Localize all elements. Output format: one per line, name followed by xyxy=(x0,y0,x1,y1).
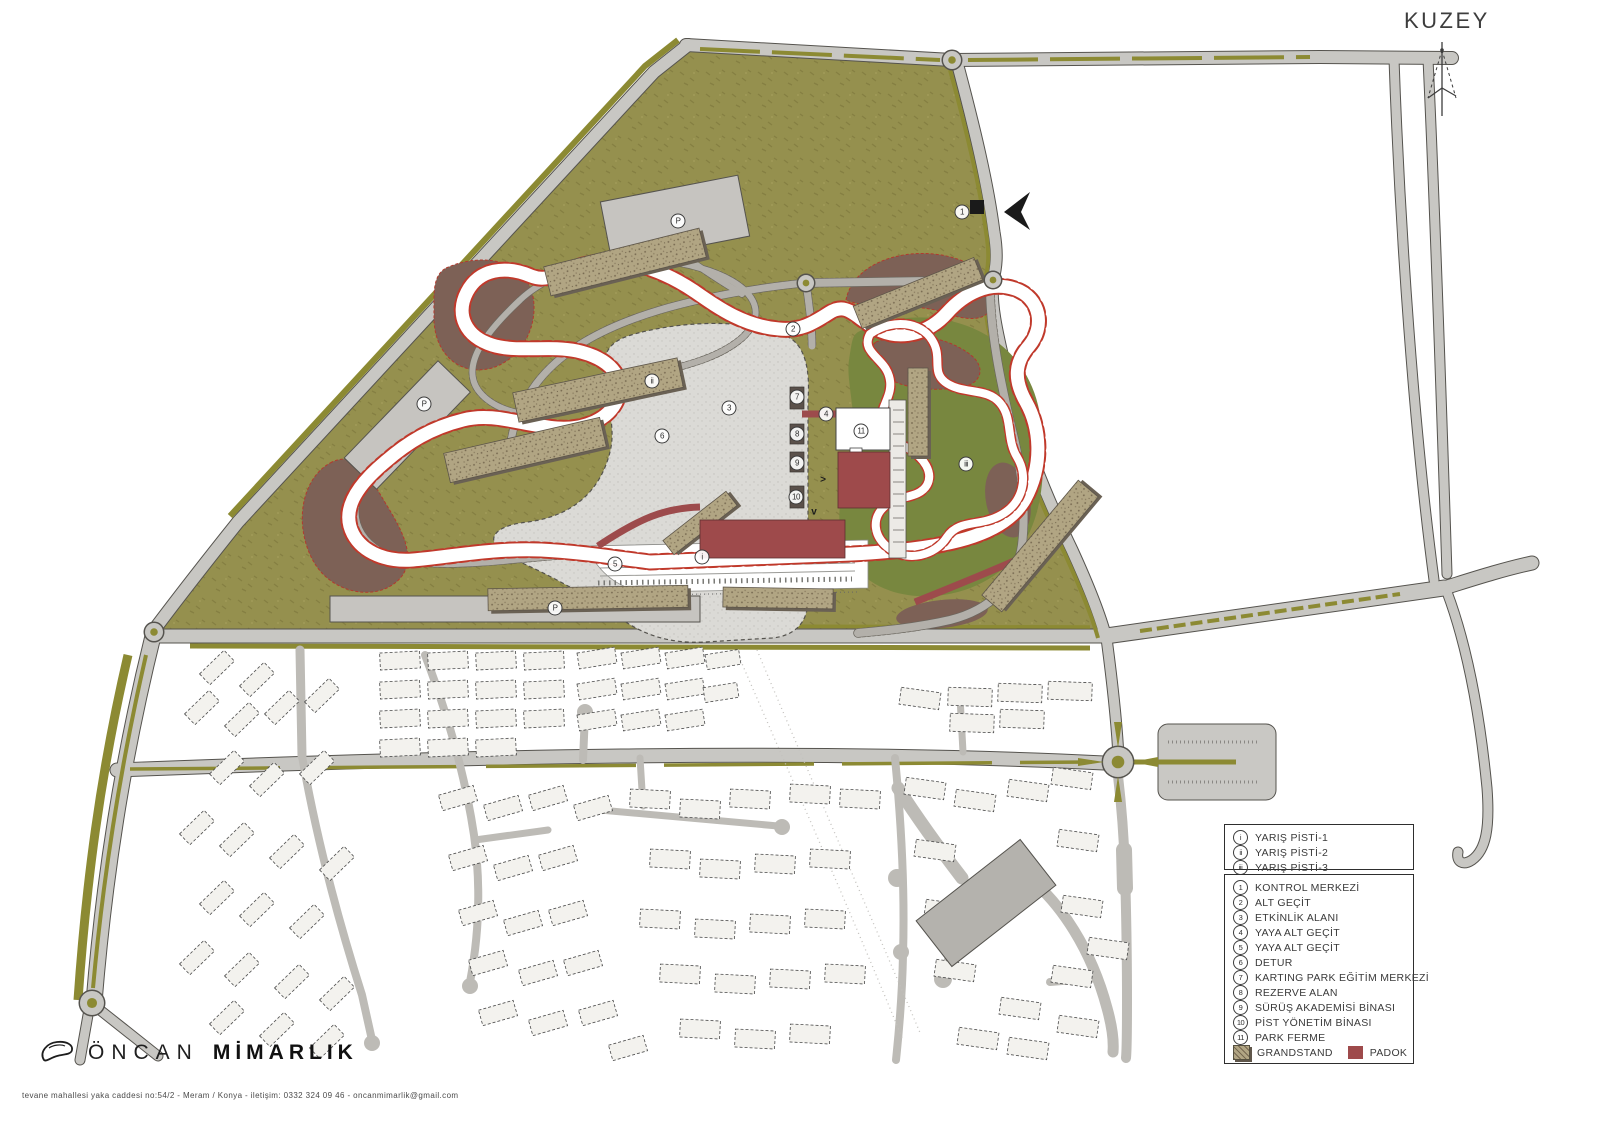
marker-detur: 6 xyxy=(655,429,670,444)
legend-num: 5 xyxy=(1233,940,1248,955)
building-footprint xyxy=(265,690,300,724)
legend-num: 11 xyxy=(1233,1030,1248,1045)
legend-num: 9 xyxy=(1233,1000,1248,1015)
legend-label: DETUR xyxy=(1255,957,1293,969)
building-footprint xyxy=(914,839,956,861)
building-footprint xyxy=(665,678,705,700)
building-footprint xyxy=(380,651,421,670)
building-footprint xyxy=(621,647,661,669)
cul-de-sac xyxy=(888,869,906,887)
roundabout-island xyxy=(1112,756,1125,769)
legend-label: YAYA ALT GEÇİT xyxy=(1255,942,1340,954)
legend-row: iiYARIŞ PİSTİ-2 xyxy=(1233,845,1405,860)
roundabout-island xyxy=(87,998,97,1008)
pit-lane xyxy=(889,400,906,558)
building-footprint xyxy=(700,859,741,879)
site-plan-canvas: KUZEY 1 2 3 4 5 6 7 8 9 10 11 i ii iii P… xyxy=(0,0,1600,1131)
marker-rezerve-alan: 8 xyxy=(790,427,805,442)
building-footprint xyxy=(630,789,671,809)
building-footprint xyxy=(680,1019,721,1039)
building-footprint xyxy=(735,1029,776,1049)
parking-label-south: P xyxy=(548,601,563,616)
marker-yaya-alt-gecit-4: 4 xyxy=(819,407,834,422)
grandstand-swatch xyxy=(1233,1045,1250,1060)
legend-num: iii xyxy=(1233,860,1248,875)
firm-logo: ÖNCAN MİMARLIK xyxy=(36,1038,358,1068)
legend-row: iYARIŞ PİSTİ-1 xyxy=(1233,830,1405,845)
legend-num: i xyxy=(1233,830,1248,845)
flow-arrow-right: > xyxy=(820,475,826,486)
building-footprint xyxy=(476,709,517,728)
road xyxy=(1428,59,1447,574)
building-footprint xyxy=(608,1035,647,1060)
roundabout-island xyxy=(948,56,956,64)
building-footprint xyxy=(275,964,310,998)
legend-row: 10PİST YÖNETİM BİNASI xyxy=(1233,1015,1405,1030)
legend-row: 9SÜRÜŞ AKADEMİSİ BİNASI xyxy=(1233,1000,1405,1015)
building-footprint xyxy=(225,702,260,736)
legend-swatch-row: GRANDSTAND PADOK xyxy=(1233,1045,1405,1060)
padok-building-long xyxy=(700,520,845,558)
building-footprint xyxy=(225,952,260,986)
building-footprint xyxy=(428,680,469,699)
marker-park-ferme: 11 xyxy=(854,424,869,439)
building-footprint xyxy=(1000,709,1045,729)
legend-label: PADOK xyxy=(1370,1047,1407,1059)
building-footprint xyxy=(428,738,469,757)
building-footprint xyxy=(380,680,421,699)
building-footprint xyxy=(493,855,532,880)
building-footprint xyxy=(705,649,741,669)
building-footprint xyxy=(528,785,567,810)
building-footprint xyxy=(524,651,565,670)
building-footprint xyxy=(1057,1015,1099,1037)
marker-surus-akademisi: 9 xyxy=(790,456,805,471)
building-footprint xyxy=(755,854,796,874)
marker-yaya-alt-gecit-5: 5 xyxy=(608,557,623,572)
building-footprint xyxy=(185,690,220,724)
building-footprint xyxy=(805,909,846,929)
legend-num: 4 xyxy=(1233,925,1248,940)
legend-label: ETKİNLİK ALANI xyxy=(1255,912,1339,924)
legend-label: YAYA ALT GEÇİT xyxy=(1255,927,1340,939)
parking-label-west: P xyxy=(417,397,432,412)
building-footprint xyxy=(948,687,993,707)
building-footprint xyxy=(1007,779,1049,801)
street xyxy=(300,650,302,756)
building-footprint xyxy=(577,647,617,669)
building-footprint xyxy=(660,964,701,984)
building-footprint xyxy=(270,834,305,868)
marker-etkinlik-alani: 3 xyxy=(722,401,737,416)
legend-label: PARK FERME xyxy=(1255,1032,1325,1044)
legend-label: SÜRÜŞ AKADEMİSİ BİNASI xyxy=(1255,1002,1395,1014)
road xyxy=(1447,592,1488,863)
brand-name-light: ÖNCAN xyxy=(88,1041,199,1065)
building-footprint xyxy=(621,678,661,700)
legend-row: 1KONTROL MERKEZİ xyxy=(1233,880,1405,895)
building-footprint xyxy=(240,892,275,926)
building-footprint xyxy=(640,909,681,929)
legend-label: KONTROL MERKEZİ xyxy=(1255,882,1359,894)
padok-swatch xyxy=(1348,1046,1363,1059)
building-footprint xyxy=(528,1010,567,1035)
building-footprint xyxy=(518,960,557,985)
legend-row: 8REZERVE ALAN xyxy=(1233,985,1405,1000)
green-median xyxy=(190,646,1090,648)
control-center-building xyxy=(970,200,984,214)
legend-num: ii xyxy=(1233,845,1248,860)
marker-pist-yonetim: 10 xyxy=(789,490,804,505)
building-footprint xyxy=(380,738,421,757)
marker-pist-1: i xyxy=(695,550,710,565)
building-footprint xyxy=(577,678,617,700)
building-footprint xyxy=(524,709,565,728)
building-footprint xyxy=(665,709,705,731)
building-footprint xyxy=(957,1027,999,1049)
legend-row: 4YAYA ALT GEÇİT xyxy=(1233,925,1405,940)
building-footprint xyxy=(1051,767,1093,789)
building-footprint xyxy=(210,1000,245,1034)
brand-name-bold: MİMARLIK xyxy=(213,1041,358,1065)
building-footprint xyxy=(180,940,215,974)
marker-pist-2: ii xyxy=(645,374,660,389)
legend-num: 3 xyxy=(1233,910,1248,925)
building-footprint xyxy=(290,904,325,938)
legend-row: 7KARTING PARK EĞİTİM MERKEZİ xyxy=(1233,970,1405,985)
building-footprint xyxy=(483,795,522,820)
grandstand xyxy=(488,585,688,610)
building-footprint xyxy=(563,950,602,975)
grandstand xyxy=(908,368,928,456)
building-footprint xyxy=(428,651,469,670)
building-footprint xyxy=(680,799,721,819)
street xyxy=(898,788,962,878)
north-label: KUZEY xyxy=(1404,8,1490,34)
building-footprint xyxy=(476,651,517,670)
building-footprint xyxy=(180,810,215,844)
firm-address: tevane mahallesi yaka caddesi no:54/2 - … xyxy=(22,1091,458,1100)
building-footprint xyxy=(578,1000,617,1025)
building-footprint xyxy=(790,784,831,804)
building-footprint xyxy=(750,914,791,934)
building-footprint xyxy=(999,997,1041,1019)
building-footprint xyxy=(524,680,565,699)
marker-kontrol-merkezi: 1 xyxy=(955,205,970,220)
building-footprint xyxy=(200,880,235,914)
legend-row: 2ALT GEÇİT xyxy=(1233,895,1405,910)
parking-label-north: P xyxy=(671,214,686,229)
building-footprint xyxy=(380,709,421,728)
legend-label: YARIŞ PİSTİ-2 xyxy=(1255,847,1328,859)
building-footprint xyxy=(428,709,469,728)
legend-label: GRANDSTAND xyxy=(1257,1047,1333,1059)
building-footprint xyxy=(770,969,811,989)
legend-num: 6 xyxy=(1233,955,1248,970)
legend-tracks-box: iYARIŞ PİSTİ-1 iiYARIŞ PİSTİ-2 iiiYARIŞ … xyxy=(1224,824,1414,870)
building-footprint xyxy=(899,687,941,709)
roundabout-island xyxy=(803,280,810,287)
legend-label: YARIŞ PİSTİ-3 xyxy=(1255,862,1328,874)
legend-num: 1 xyxy=(1233,880,1248,895)
grandstand xyxy=(723,587,833,609)
legend-label: KARTING PARK EĞİTİM MERKEZİ xyxy=(1255,972,1429,984)
building-footprint xyxy=(825,964,866,984)
street xyxy=(1124,850,1125,888)
building-footprint xyxy=(478,1000,517,1025)
legend-num: 2 xyxy=(1233,895,1248,910)
entrance-arrow-icon xyxy=(1004,192,1030,230)
building-footprint xyxy=(621,709,661,731)
building-footprint xyxy=(573,795,612,820)
building-footprint xyxy=(665,647,705,669)
legend-label: REZERVE ALAN xyxy=(1255,987,1338,999)
building-footprint xyxy=(695,919,736,939)
street xyxy=(475,830,548,840)
building-footprint xyxy=(503,910,542,935)
building-footprint xyxy=(305,678,340,712)
legend-num: 10 xyxy=(1233,1015,1248,1030)
street xyxy=(425,655,478,982)
legend-row: 11PARK FERME xyxy=(1233,1030,1405,1045)
marker-karting-park: 7 xyxy=(790,390,805,405)
cul-de-sac xyxy=(774,819,790,835)
legend-row: 6DETUR xyxy=(1233,955,1405,970)
street xyxy=(1118,776,1127,1058)
roundabout-island xyxy=(990,277,997,284)
building-footprint xyxy=(730,789,771,809)
building-footprint xyxy=(448,845,487,870)
building-footprint xyxy=(240,662,275,696)
splitter-island xyxy=(1132,757,1158,767)
building-footprint xyxy=(1048,681,1093,701)
building-footprint xyxy=(810,849,851,869)
marker-pist-3: iii xyxy=(959,457,974,472)
building-footprint xyxy=(1057,829,1099,851)
building-footprint xyxy=(548,900,587,925)
marker-alt-gecit: 2 xyxy=(786,322,801,337)
legend-row: iiiYARIŞ PİSTİ-3 xyxy=(1233,860,1405,875)
building-footprint xyxy=(220,822,255,856)
legend-items-box: 1KONTROL MERKEZİ 2ALT GEÇİT 3ETKİNLİK AL… xyxy=(1224,874,1414,1064)
cul-de-sac xyxy=(462,978,478,994)
legend-row: 3ETKİNLİK ALANI xyxy=(1233,910,1405,925)
legend-num: 8 xyxy=(1233,985,1248,1000)
building-footprint xyxy=(715,974,756,994)
building-footprint xyxy=(703,682,739,702)
flow-arrow-down: v xyxy=(811,507,817,518)
padok-building xyxy=(838,452,890,508)
building-footprint xyxy=(650,849,691,869)
legend-num: 7 xyxy=(1233,970,1248,985)
building-footprint xyxy=(476,738,517,757)
building-footprint xyxy=(998,683,1043,703)
legend-label: PİST YÖNETİM BİNASI xyxy=(1255,1017,1372,1029)
logo-icon xyxy=(36,1038,76,1068)
building-footprint xyxy=(200,650,235,684)
legend-row: 5YAYA ALT GEÇİT xyxy=(1233,940,1405,955)
roundabout-island xyxy=(150,628,158,636)
building-footprint xyxy=(1007,1037,1049,1059)
building-footprint xyxy=(950,713,995,733)
building-footprint xyxy=(538,845,577,870)
building-footprint xyxy=(320,976,355,1010)
cul-de-sac xyxy=(893,944,909,960)
building-footprint xyxy=(840,789,881,809)
legend-label: YARIŞ PİSTİ-1 xyxy=(1255,832,1328,844)
legend-label: ALT GEÇİT xyxy=(1255,897,1311,909)
north-arrow-icon xyxy=(1412,36,1472,120)
building-footprint xyxy=(954,789,996,811)
building-footprint xyxy=(476,680,517,699)
building-footprint xyxy=(790,1024,831,1044)
cul-de-sac xyxy=(364,1035,380,1051)
